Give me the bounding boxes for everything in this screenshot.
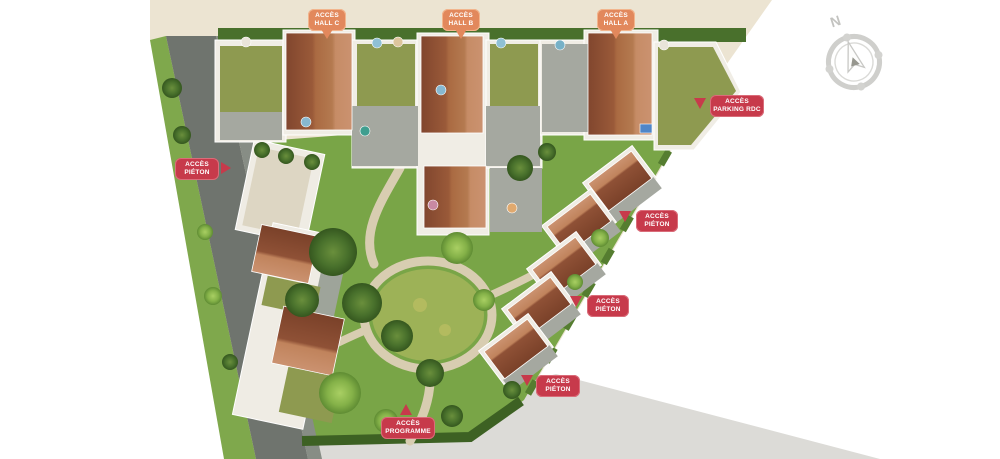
- terrace: [486, 106, 540, 166]
- access-programme-label[interactable]: ACCÈS PROGRAMME: [381, 417, 435, 439]
- label-line: ACCÈS: [315, 12, 339, 20]
- access-hall-a-pointer: [610, 29, 622, 39]
- label-line: PROGRAMME: [385, 428, 431, 436]
- access-pieton-northeast-label[interactable]: ACCÈS PIÉTON: [636, 210, 678, 232]
- hall-a-roof: [588, 33, 652, 135]
- label-line: PIÉTON: [184, 169, 209, 177]
- label-line: PIÉTON: [595, 306, 620, 314]
- label-line: ACCÈS: [185, 161, 209, 169]
- label-line: ACCÈS: [725, 98, 749, 106]
- access-parking-rdc-label[interactable]: ACCÈS PARKING RDC: [710, 95, 764, 117]
- access-programme-pointer: [400, 404, 412, 415]
- label-line: HALL A: [604, 20, 629, 28]
- label-line: HALL B: [449, 20, 474, 28]
- hall-c-roof: [286, 33, 352, 130]
- compass-rose: [818, 26, 891, 99]
- access-pieton-east-label[interactable]: ACCÈS PIÉTON: [587, 295, 629, 317]
- access-pieton-west-pointer: [221, 162, 231, 174]
- meadow-texture: [413, 298, 427, 312]
- green-roof: [220, 46, 282, 112]
- access-hall-a-label[interactable]: ACCÈS HALL A: [597, 9, 635, 31]
- label-line: ACCÈS: [604, 12, 628, 20]
- compass-icon: N: [812, 4, 896, 100]
- label-line: PIÉTON: [644, 221, 669, 229]
- access-pieton-northeast-pointer: [619, 211, 631, 222]
- terrace: [352, 106, 418, 166]
- central-roof: [424, 166, 486, 228]
- hall-b-roof: [421, 36, 483, 133]
- green-roof: [357, 44, 415, 106]
- terrace: [220, 112, 282, 140]
- access-parking-pointer: [694, 98, 706, 109]
- access-hall-b-pointer: [455, 29, 467, 39]
- terrace: [542, 44, 588, 132]
- label-line: ACCÈS: [596, 298, 620, 306]
- access-pieton-southeast-pointer: [521, 375, 533, 386]
- access-hall-b-label[interactable]: ACCÈS HALL B: [442, 9, 480, 31]
- site-plan-screenshot: ACCÈS HALL C ACCÈS HALL B ACCÈS HALL A A…: [0, 0, 1000, 459]
- compass-north-label: N: [828, 12, 843, 30]
- access-pieton-west-label[interactable]: ACCÈS PIÉTON: [175, 158, 219, 180]
- label-line: PIÉTON: [545, 386, 570, 394]
- label-line: ACCÈS: [645, 213, 669, 221]
- access-hall-c-pointer: [321, 29, 333, 39]
- access-pieton-southeast-label[interactable]: ACCÈS PIÉTON: [536, 375, 580, 397]
- label-line: ACCÈS: [449, 12, 473, 20]
- label-line: ACCÈS: [396, 420, 420, 428]
- label-line: ACCÈS: [546, 378, 570, 386]
- access-pieton-east-pointer: [570, 296, 582, 307]
- townhouse-roof: [272, 306, 345, 376]
- green-roof: [490, 44, 538, 106]
- label-line: PARKING RDC: [713, 106, 761, 114]
- label-line: HALL C: [315, 20, 340, 28]
- access-hall-c-label[interactable]: ACCÈS HALL C: [308, 9, 346, 31]
- meadow-texture: [439, 324, 451, 336]
